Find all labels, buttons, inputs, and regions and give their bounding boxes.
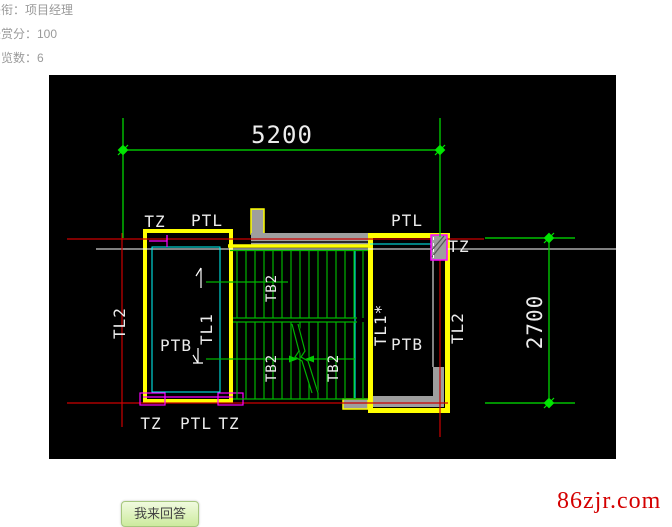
label-tl1-left: TL1 (197, 313, 216, 345)
label-ptb-left: PTB (160, 336, 192, 355)
label-tz-bottom-mid: TZ (218, 414, 239, 433)
label-tl1-star-right: TL1* (371, 304, 390, 347)
magenta-details (140, 235, 243, 405)
label-ptl-top-left: PTL (191, 211, 223, 230)
profile-reward-line: 悬赏分：100 (0, 22, 73, 46)
label-tb2-lower-right: TB2 (326, 354, 342, 382)
label-tb2-upper: TB2 (264, 274, 280, 302)
label-tz-top-left: TZ (144, 212, 165, 231)
left-beam-box (145, 231, 231, 401)
label-tz-bottom-left: TZ (140, 414, 161, 433)
profile-views-line: 浏览数：6 (0, 46, 73, 70)
treads-upper-flight (237, 251, 363, 318)
label-tl2-right: TL2 (448, 312, 467, 344)
up-arrow-mark-icon (196, 268, 201, 288)
label-tl2-left: TL2 (110, 307, 129, 339)
lower-landing-slab (343, 399, 368, 409)
page: { "profile": { "line1": "头衔：项目经理", "line… (0, 0, 672, 517)
label-ptl-bottom: PTL (180, 414, 212, 433)
label-ptb-right: PTB (391, 335, 423, 354)
right-box-internals (431, 235, 447, 367)
watermark-text: 86zjr.com (557, 488, 661, 515)
left-box-magenta-mark (149, 235, 167, 241)
label-tb2-lower-left: TB2 (264, 354, 280, 382)
profile-title-line: 头衔：项目经理 (0, 0, 73, 22)
answer-button[interactable]: 我来回答 (121, 501, 199, 527)
dim-text-2700: 2700 (523, 295, 547, 350)
cad-labels: 5200 2700 TZ PTL PTL TZ TL2 TL1 PTB TB2 … (110, 121, 547, 433)
beam-outlines (145, 231, 448, 411)
down-arrow-mark-icon (193, 348, 203, 363)
right-slab-bar (372, 396, 444, 407)
cad-stair-plan-viewport: 5200 2700 TZ PTL PTL TZ TL2 TL1 PTB TB2 … (49, 75, 616, 459)
landing-slab-stub (251, 209, 264, 234)
user-profile-info: 头衔：项目经理 悬赏分：100 浏览数：6 (0, 0, 73, 70)
label-tz-right: TZ (448, 237, 469, 256)
arrow-right-icon (289, 356, 298, 363)
label-ptl-top-right: PTL (391, 211, 423, 230)
dim-text-5200: 5200 (251, 121, 313, 149)
